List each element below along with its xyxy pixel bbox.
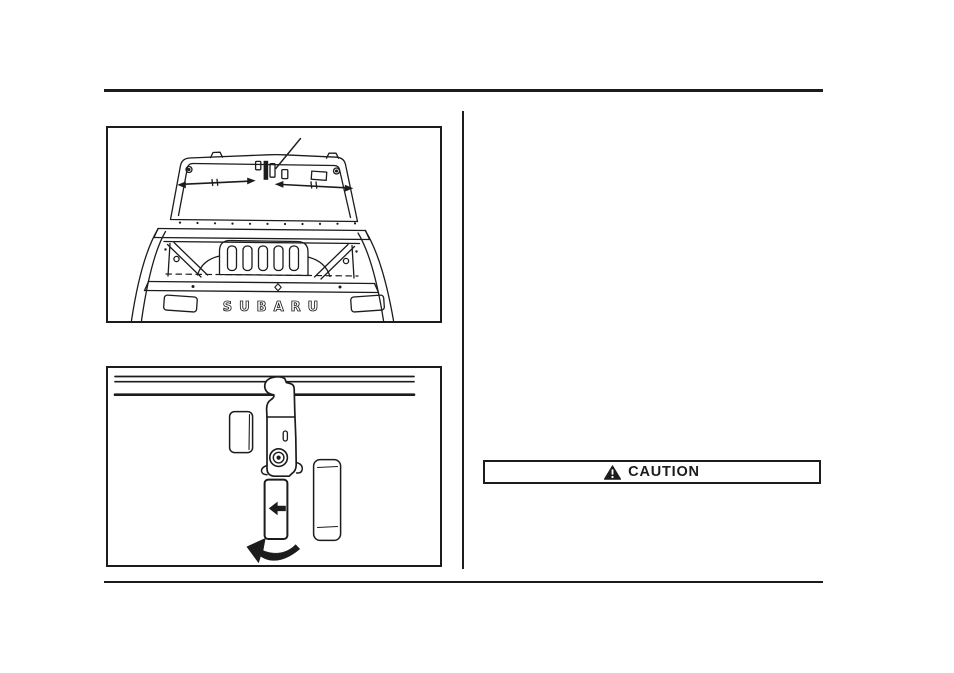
caution-box: CAUTION: [483, 460, 821, 484]
latch-handle: [265, 480, 288, 539]
callout-leader-line: [276, 139, 301, 169]
striker-pad-left: [230, 412, 253, 453]
rear-gate-drawing: SUBARU: [108, 128, 440, 321]
manual-page: SUBARU: [0, 0, 954, 673]
figure-latch: [106, 366, 442, 567]
rivet-dots: [179, 222, 356, 226]
striker-pad-right: [314, 460, 341, 541]
taillight-left: [163, 295, 197, 312]
double-headed-arrow-icon-right: [275, 181, 354, 192]
double-headed-arrow-icon-left: [177, 178, 255, 189]
hinge-band: [154, 229, 370, 240]
latch-drawing: [108, 368, 440, 565]
warning-triangle-icon: [604, 465, 621, 480]
header-rule: [104, 89, 823, 92]
gate-latch-detail: [256, 139, 327, 181]
cab-guard-grille: [164, 241, 360, 277]
curved-rotation-arrow-icon: [247, 538, 300, 562]
subaru-badge-text: SUBARU: [223, 300, 325, 315]
footer-rule: [104, 581, 823, 583]
column-divider: [462, 111, 464, 569]
caution-label: CAUTION: [628, 465, 700, 480]
latch-hook: [262, 377, 303, 476]
figure-rear-gate: SUBARU: [106, 126, 442, 323]
